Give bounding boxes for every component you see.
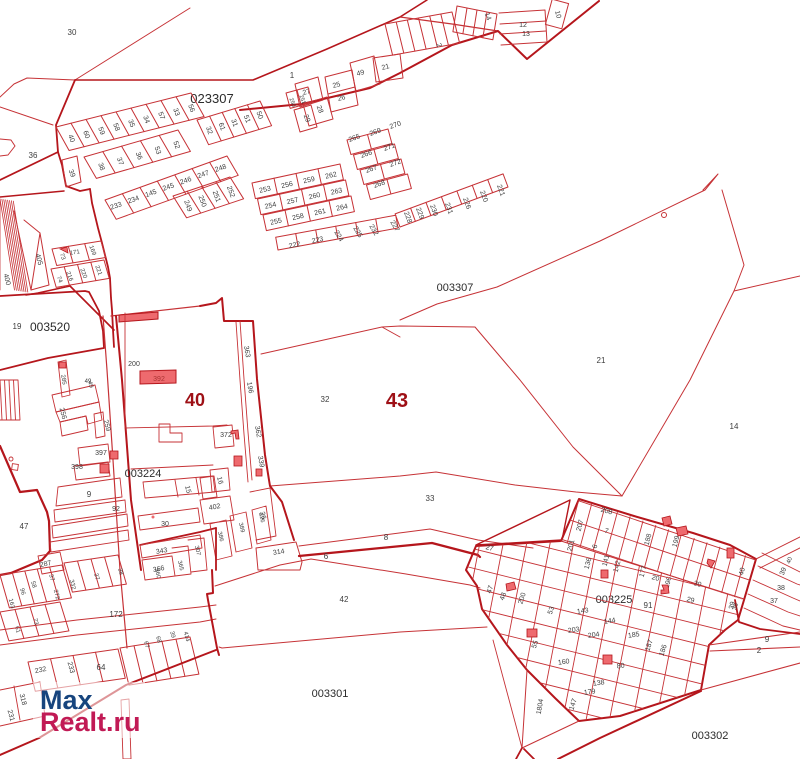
svg-text:64: 64 bbox=[97, 663, 106, 672]
svg-text:200: 200 bbox=[128, 361, 140, 368]
svg-text:91: 91 bbox=[644, 601, 653, 610]
svg-text:003224: 003224 bbox=[125, 468, 162, 480]
svg-text:003520: 003520 bbox=[30, 320, 70, 334]
svg-text:49: 49 bbox=[85, 379, 92, 385]
svg-text:1: 1 bbox=[290, 71, 295, 80]
svg-text:19: 19 bbox=[13, 322, 22, 331]
svg-text:40: 40 bbox=[185, 390, 205, 410]
svg-text:12: 12 bbox=[519, 22, 527, 29]
svg-text:80: 80 bbox=[616, 662, 625, 670]
svg-text:372: 372 bbox=[220, 432, 232, 439]
svg-text:6: 6 bbox=[324, 552, 329, 561]
svg-text:33: 33 bbox=[426, 494, 435, 503]
svg-text:42: 42 bbox=[340, 595, 349, 604]
svg-text:397: 397 bbox=[95, 450, 107, 457]
svg-text:392: 392 bbox=[153, 376, 165, 383]
svg-text:21: 21 bbox=[597, 356, 606, 365]
svg-text:003301: 003301 bbox=[312, 688, 349, 700]
svg-text:43: 43 bbox=[386, 390, 408, 412]
svg-text:003307: 003307 bbox=[437, 282, 474, 294]
svg-text:32: 32 bbox=[321, 395, 330, 404]
svg-text:92: 92 bbox=[112, 506, 120, 513]
svg-text:398: 398 bbox=[71, 464, 83, 471]
svg-text:Realt.ru: Realt.ru bbox=[40, 707, 141, 737]
svg-text:30: 30 bbox=[161, 521, 169, 528]
svg-text:36: 36 bbox=[29, 151, 38, 160]
svg-text:9: 9 bbox=[765, 635, 770, 644]
svg-text:30: 30 bbox=[68, 28, 77, 37]
svg-text:14: 14 bbox=[730, 422, 739, 431]
svg-text:9: 9 bbox=[87, 490, 92, 499]
svg-text:47: 47 bbox=[20, 522, 29, 531]
svg-text:13: 13 bbox=[522, 31, 530, 38]
svg-text:172: 172 bbox=[109, 610, 123, 619]
svg-text:2: 2 bbox=[757, 646, 762, 655]
svg-text:003302: 003302 bbox=[692, 730, 729, 742]
svg-text:8: 8 bbox=[384, 533, 389, 542]
svg-text:37: 37 bbox=[770, 598, 778, 605]
svg-text:38: 38 bbox=[777, 585, 785, 592]
